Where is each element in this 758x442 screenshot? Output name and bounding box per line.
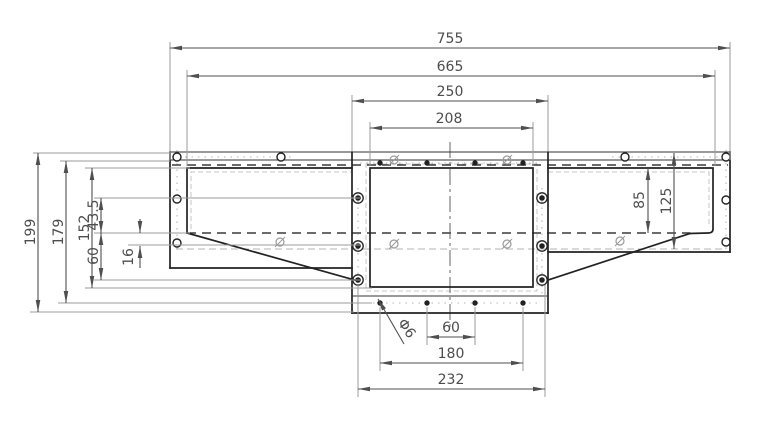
dim-label-755: 755	[437, 31, 464, 47]
bolt-hole	[173, 195, 181, 203]
drawing-canvas: 755 665 250 208 199 179 152 43.5 60 16 8…	[0, 0, 758, 442]
dim-label-180: 180	[438, 346, 465, 362]
dimension-43_5: 43.5	[86, 198, 102, 233]
technical-drawing: 755 665 250 208 199 179 152 43.5 60 16 8…	[0, 0, 758, 442]
bolt-hole	[173, 153, 181, 161]
dim-label-208: 208	[436, 111, 463, 127]
bolt-hole	[722, 238, 730, 246]
dim-label-199: 199	[23, 219, 39, 246]
dim-label-43-5: 43.5	[86, 199, 102, 230]
dimension-208: 208	[370, 111, 533, 128]
right-transition-diagonal	[548, 234, 690, 281]
bolt-hole	[277, 153, 285, 161]
extension-lines	[30, 42, 730, 397]
dim-label-179: 179	[51, 219, 67, 246]
hole-callout-label: Φ6	[394, 316, 419, 342]
dim-label-60-left: 60	[86, 247, 102, 265]
bolt-hole	[722, 196, 730, 204]
dimension-85: 85	[632, 168, 648, 233]
center-lines	[172, 142, 734, 330]
dimension-199: 199	[23, 153, 39, 312]
hidden-hole-icon	[389, 155, 399, 165]
dimension-232: 232	[358, 372, 545, 389]
dim-label-232: 232	[438, 372, 465, 388]
dimension-755: 755	[170, 31, 730, 48]
hidden-hole-icon	[615, 236, 625, 246]
bolt-holes	[173, 153, 730, 306]
dim-label-85: 85	[632, 191, 648, 209]
hidden-hole-icon	[502, 239, 512, 249]
hole-callout-phi6: Φ6	[378, 299, 419, 344]
right-opening-edge	[548, 168, 713, 234]
hidden-edge	[366, 164, 537, 291]
hidden-edge	[191, 172, 352, 229]
bolt-hole	[722, 153, 730, 161]
dim-label-250: 250	[437, 84, 464, 100]
dim-label-665: 665	[437, 59, 464, 75]
left-opening-edge	[187, 168, 352, 233]
dimension-665: 665	[187, 59, 715, 76]
dimension-60-bottom: 60	[427, 320, 475, 337]
dimension-180: 180	[380, 346, 523, 363]
dim-label-125: 125	[659, 188, 675, 215]
bolt-hole	[621, 153, 629, 161]
hidden-hole-icon	[389, 239, 399, 249]
bolt-hole	[173, 239, 181, 247]
dimension-179: 179	[51, 161, 67, 303]
dimension-16: 16	[121, 219, 140, 268]
left-transition-diagonal	[187, 233, 358, 281]
dimension-250: 250	[352, 84, 548, 101]
dim-label-60-bottom: 60	[442, 320, 460, 336]
hidden-edge	[548, 172, 709, 226]
center-opening-edge	[370, 168, 533, 287]
dim-label-16: 16	[121, 248, 137, 266]
